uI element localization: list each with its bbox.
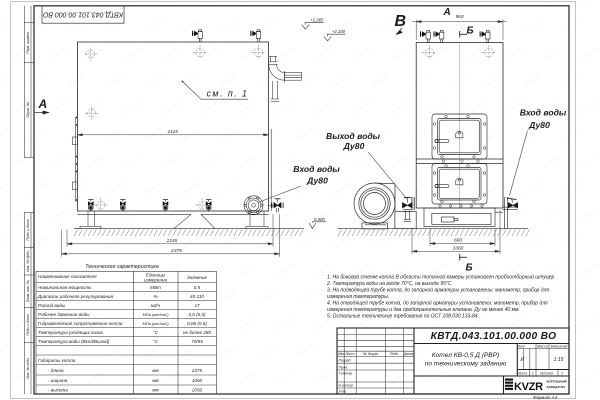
svg-text:1. На боковой стенке котла В: 1. На боковой стенке котла В области топ… <box>327 274 555 281</box>
svg-text:Техническая характеристика: Техническая характеристика <box>85 264 159 270</box>
svg-text:40-110: 40-110 <box>190 294 204 299</box>
svg-text:0,06 (0,6): 0,06 (0,6) <box>187 321 207 326</box>
svg-text:Масса: Масса <box>537 344 548 348</box>
svg-text:КВТД.043.101.00.000 ВО: КВТД.043.101.00.000 ВО <box>43 11 123 18</box>
svg-text:3. На подводящей трубе котла,: 3. На подводящей трубе котла, до запорно… <box>327 287 549 294</box>
svg-text:МВт: МВт <box>150 285 161 290</box>
svg-text:мм: мм <box>152 378 159 383</box>
svg-text:0.000: 0.000 <box>314 217 325 222</box>
svg-text:0,6 (6,0): 0,6 (6,0) <box>188 312 206 317</box>
svg-text:Диапазон рабочего регулировани: Диапазон рабочего регулирования <box>37 294 114 299</box>
svg-text:Подп.: Подп. <box>390 352 400 356</box>
svg-text:70/95: 70/95 <box>191 339 203 344</box>
svg-text:1060: 1060 <box>192 378 203 383</box>
svg-text:+2.100: +2.100 <box>332 29 346 34</box>
svg-text:2: 2 <box>560 371 563 375</box>
svg-text:Выход воды: Выход воды <box>326 131 381 141</box>
svg-text:2245: 2245 <box>166 238 178 244</box>
svg-text:1: 1 <box>532 371 534 375</box>
svg-text:5. Остальные технические треб: 5. Остальные технические требования по О… <box>327 313 479 319</box>
svg-text:2. Температура воды на входе: 2. Температура воды на входе 70°С, на вы… <box>326 281 453 287</box>
svg-text:%: % <box>153 294 157 299</box>
svg-text:Листов: Листов <box>539 371 553 375</box>
svg-text:КВТД.043.101.00.000 ВО: КВТД.043.101.00.000 ВО <box>431 331 557 342</box>
svg-text:Наименование показателя: Наименование показателя <box>38 274 97 279</box>
svg-text:2375: 2375 <box>170 248 182 254</box>
svg-text:Т.контр.: Т.контр. <box>339 372 354 376</box>
svg-text:+2.265: +2.265 <box>310 17 324 22</box>
svg-text:А: А <box>38 97 48 111</box>
svg-text:Инв. No подл.: Инв. No подл. <box>26 357 30 379</box>
svg-text:Инв. No дубл.: Инв. No дубл. <box>26 250 30 272</box>
svg-text:Формат А3: Формат А3 <box>533 395 558 400</box>
svg-text:Лист: Лист <box>344 352 354 356</box>
svg-text:°С: °С <box>153 339 159 344</box>
svg-text:Габариты котла: Габариты котла <box>38 358 76 363</box>
svg-text:960: 960 <box>455 14 463 20</box>
svg-text:2050: 2050 <box>191 388 203 393</box>
svg-text:660: 660 <box>454 238 462 244</box>
svg-text:не более 280: не более 280 <box>183 330 211 335</box>
svg-text:измерения: измерения <box>144 277 168 282</box>
svg-text:Подп. и дата: Подп. и дата <box>26 314 30 335</box>
svg-text:Лист: Лист <box>517 371 527 375</box>
svg-text:17: 17 <box>194 303 200 308</box>
svg-text:№ докум.: № докум. <box>363 352 379 356</box>
svg-text:Гидравлическое сопротивление к: Гидравлическое сопротивление котла <box>38 321 123 326</box>
svg-text:Утв.: Утв. <box>339 390 347 394</box>
svg-text:Изм: Изм <box>338 352 345 356</box>
svg-text:А: А <box>443 7 451 18</box>
svg-text:И: И <box>521 357 525 363</box>
svg-text:по техническому заданию: по техническому заданию <box>425 360 507 368</box>
svg-text:измерения температуры.: измерения температуры. <box>327 294 389 300</box>
svg-text:Температура воды (Вход/Выход): Температура воды (Вход/Выход) <box>38 339 110 344</box>
svg-text:- длина: - длина <box>48 368 64 373</box>
svg-text:4. На отводящей трубе котла,: 4. На отводящей трубе котла, до запорной… <box>327 299 548 306</box>
svg-text:МПа (кгс/см2): МПа (кгс/см2) <box>142 321 169 326</box>
svg-text:Котел КВ-0,5 Д (РВР): Котел КВ-0,5 Д (РВР) <box>432 352 500 359</box>
svg-text:Вход воды: Вход воды <box>520 108 567 118</box>
svg-text:Лит.: Лит. <box>517 344 526 348</box>
svg-text:см. п. 1: см. п. 1 <box>207 89 249 99</box>
svg-text:1:15: 1:15 <box>553 357 563 363</box>
svg-text:Б: Б <box>466 263 473 274</box>
svg-text:Вход воды: Вход воды <box>293 164 340 174</box>
svg-text:Подп. и дата: Подп. и дата <box>26 219 30 240</box>
svg-text:КОТЕЛЬНЫЙ: КОТЕЛЬНЫЙ <box>547 380 568 384</box>
svg-text:м3/ч: м3/ч <box>151 303 161 308</box>
svg-text:Б: Б <box>467 26 474 37</box>
svg-text:0,5: 0,5 <box>194 285 201 290</box>
svg-text:Перв. примен.: Перв. примен. <box>26 31 30 54</box>
svg-text:Расход воды: Расход воды <box>38 303 66 308</box>
svg-text:KVZR: KVZR <box>514 381 543 393</box>
svg-text:Справ. No: Справ. No <box>26 102 30 118</box>
svg-text:Значение: Значение <box>187 275 208 280</box>
svg-text:Пров.: Пров. <box>339 365 348 369</box>
svg-text:мм: мм <box>152 388 159 393</box>
svg-text:Ду80: Ду80 <box>528 120 550 130</box>
svg-text:- ширина: - ширина <box>48 378 68 383</box>
svg-text:- высота: - высота <box>48 388 68 393</box>
svg-text:МПа (кгс/см2): МПа (кгс/см2) <box>142 312 169 317</box>
svg-text:Взам. инв. No: Взам. инв. No <box>26 280 30 302</box>
svg-text:измерения температуры и два пр: измерения температуры и два предохраните… <box>327 307 520 313</box>
svg-text:Ду80: Ду80 <box>343 141 365 151</box>
svg-text:ЗАВОД РЭП: ЗАВОД РЭП <box>547 385 566 389</box>
svg-text:Температура уходящих газов: Температура уходящих газов <box>38 330 103 335</box>
svg-text:1060: 1060 <box>453 246 464 252</box>
svg-text:Номинальная мощность: Номинальная мощность <box>38 285 92 290</box>
svg-text:2115: 2115 <box>167 129 179 135</box>
svg-text:Масштаб: Масштаб <box>551 344 569 348</box>
svg-text:В: В <box>395 13 407 30</box>
svg-text:°С: °С <box>153 330 159 335</box>
svg-text:мм: мм <box>152 368 159 373</box>
svg-text:Рабочее давление воды: Рабочее давление воды <box>38 312 90 317</box>
svg-text:Ду80: Ду80 <box>306 176 328 186</box>
svg-text:Н.контр.: Н.контр. <box>339 384 354 388</box>
svg-text:Разраб.: Разраб. <box>339 359 352 363</box>
svg-text:Дата: Дата <box>403 352 413 356</box>
svg-text:2375: 2375 <box>191 368 203 373</box>
